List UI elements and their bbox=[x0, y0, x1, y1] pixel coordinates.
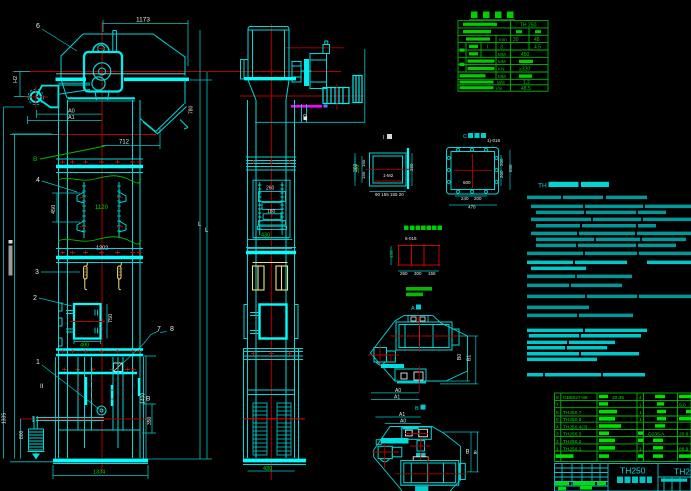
svg-text:B: B bbox=[415, 406, 419, 412]
svg-text:200: 200 bbox=[474, 196, 482, 201]
svg-text:300: 300 bbox=[414, 271, 422, 276]
svg-text:1: 1 bbox=[639, 446, 642, 452]
svg-text:6: 6 bbox=[556, 410, 559, 416]
svg-text:1-M2: 1-M2 bbox=[383, 173, 394, 178]
svg-text:TH250.3: TH250.3 bbox=[563, 432, 582, 438]
svg-text:MM: MM bbox=[498, 59, 506, 64]
svg-text:1)-018: 1)-018 bbox=[487, 138, 501, 143]
svg-text:TH250.4(3): TH250.4(3) bbox=[563, 424, 588, 430]
svg-text:260: 260 bbox=[409, 163, 414, 171]
svg-text:600: 600 bbox=[463, 180, 471, 185]
svg-text:4: 4 bbox=[36, 177, 40, 184]
svg-text:90 155 155 20: 90 155 155 20 bbox=[375, 192, 404, 197]
svg-text:TH250.6: TH250.6 bbox=[563, 417, 582, 423]
svg-text:260: 260 bbox=[266, 186, 275, 192]
svg-text:II: II bbox=[40, 384, 44, 390]
svg-text:r/m: r/m bbox=[496, 86, 503, 91]
svg-text:8: 8 bbox=[556, 395, 559, 401]
svg-text:M/S: M/S bbox=[497, 80, 505, 85]
svg-text:1335: 1335 bbox=[2, 413, 8, 424]
svg-text:B1: B1 bbox=[467, 355, 473, 361]
svg-text:1120: 1120 bbox=[95, 205, 109, 211]
svg-text:TH250.7: TH250.7 bbox=[563, 410, 582, 416]
svg-text:3: 3 bbox=[35, 269, 39, 276]
svg-text:2: 2 bbox=[33, 295, 37, 302]
svg-text:A1: A1 bbox=[68, 115, 75, 121]
svg-text:7: 7 bbox=[157, 326, 161, 333]
svg-text:H2: H2 bbox=[13, 76, 19, 83]
svg-text:≥320: ≥320 bbox=[519, 67, 530, 73]
svg-text:240: 240 bbox=[461, 196, 469, 201]
svg-text:MM: MM bbox=[498, 52, 506, 57]
svg-text:155: 155 bbox=[428, 271, 436, 276]
svg-text:20.35: 20.35 bbox=[612, 395, 624, 401]
svg-text:1: 1 bbox=[639, 410, 642, 416]
svg-text:350: 350 bbox=[147, 416, 153, 425]
svg-text:48.5: 48.5 bbox=[521, 86, 531, 92]
svg-text:A0: A0 bbox=[395, 388, 401, 394]
svg-text:30: 30 bbox=[513, 37, 519, 43]
svg-text:A: A bbox=[411, 306, 415, 312]
svg-text:20.6: 20.6 bbox=[679, 432, 689, 438]
svg-text:8-018: 8-018 bbox=[405, 236, 417, 241]
svg-text:430: 430 bbox=[263, 466, 272, 472]
svg-text:TH250.2: TH250.2 bbox=[563, 439, 582, 445]
svg-text:A1: A1 bbox=[399, 412, 405, 418]
svg-text:180: 180 bbox=[267, 209, 276, 215]
svg-text:TH250.1: TH250.1 bbox=[563, 446, 582, 452]
svg-text:4: 4 bbox=[556, 424, 559, 430]
svg-text:6: 6 bbox=[36, 23, 40, 30]
svg-text:A1: A1 bbox=[394, 394, 400, 400]
svg-text:8: 8 bbox=[170, 326, 174, 333]
svg-text:600: 600 bbox=[508, 164, 513, 172]
svg-text:KN: KN bbox=[498, 67, 504, 72]
svg-text:1: 1 bbox=[639, 402, 642, 408]
svg-text:450: 450 bbox=[51, 205, 57, 214]
svg-text:200: 200 bbox=[499, 158, 504, 166]
svg-text:4: 4 bbox=[639, 395, 642, 401]
svg-text:B: B bbox=[466, 450, 470, 456]
svg-text:1: 1 bbox=[36, 359, 40, 366]
svg-text:750: 750 bbox=[108, 314, 114, 323]
svg-text:7: 7 bbox=[556, 402, 559, 408]
svg-text:48: 48 bbox=[534, 37, 540, 43]
svg-text:B0: B0 bbox=[457, 354, 463, 360]
svg-text:C: C bbox=[463, 134, 467, 140]
svg-text:400: 400 bbox=[80, 343, 89, 349]
svg-text:3: 3 bbox=[556, 432, 559, 438]
svg-text:4.5: 4.5 bbox=[534, 44, 541, 50]
svg-text:5: 5 bbox=[556, 417, 559, 423]
svg-text:450: 450 bbox=[521, 52, 530, 58]
svg-text:1173: 1173 bbox=[136, 17, 150, 24]
svg-text:360: 360 bbox=[353, 163, 359, 172]
svg-text:GB8027-86: GB8027-86 bbox=[563, 395, 588, 401]
svg-text:1: 1 bbox=[556, 446, 559, 452]
svg-text:B: B bbox=[146, 396, 150, 403]
svg-text:1334: 1334 bbox=[93, 470, 105, 476]
svg-text:780: 780 bbox=[189, 105, 195, 114]
svg-text:l: l bbox=[487, 44, 488, 50]
svg-text:MM: MM bbox=[498, 74, 506, 79]
svg-text:1: 1 bbox=[639, 417, 642, 423]
svg-text:1400: 1400 bbox=[141, 393, 147, 404]
svg-text:435: 435 bbox=[389, 250, 394, 258]
svg-text:TH: TH bbox=[538, 182, 547, 189]
svg-text:2: 2 bbox=[556, 439, 559, 445]
svg-text:200: 200 bbox=[499, 170, 504, 178]
svg-text:9.0: 9.0 bbox=[679, 402, 686, 408]
svg-text:TH 250: TH 250 bbox=[520, 22, 537, 28]
svg-text:260: 260 bbox=[400, 271, 408, 276]
svg-text:Q235-A: Q235-A bbox=[648, 432, 665, 438]
svg-text:88.9: 88.9 bbox=[679, 446, 689, 452]
svg-text:mm: mm bbox=[499, 37, 507, 42]
svg-text:TH2: TH2 bbox=[674, 467, 690, 477]
svg-text:B: B bbox=[33, 156, 37, 163]
svg-text:800: 800 bbox=[19, 430, 25, 439]
svg-text:430: 430 bbox=[261, 233, 270, 239]
svg-text:712: 712 bbox=[119, 140, 130, 146]
svg-text:B: B bbox=[303, 115, 307, 121]
svg-text:A0: A0 bbox=[400, 419, 406, 425]
svg-text:3: 3 bbox=[500, 44, 503, 50]
svg-text:TH250: TH250 bbox=[620, 466, 646, 476]
svg-text:A0: A0 bbox=[68, 109, 75, 115]
